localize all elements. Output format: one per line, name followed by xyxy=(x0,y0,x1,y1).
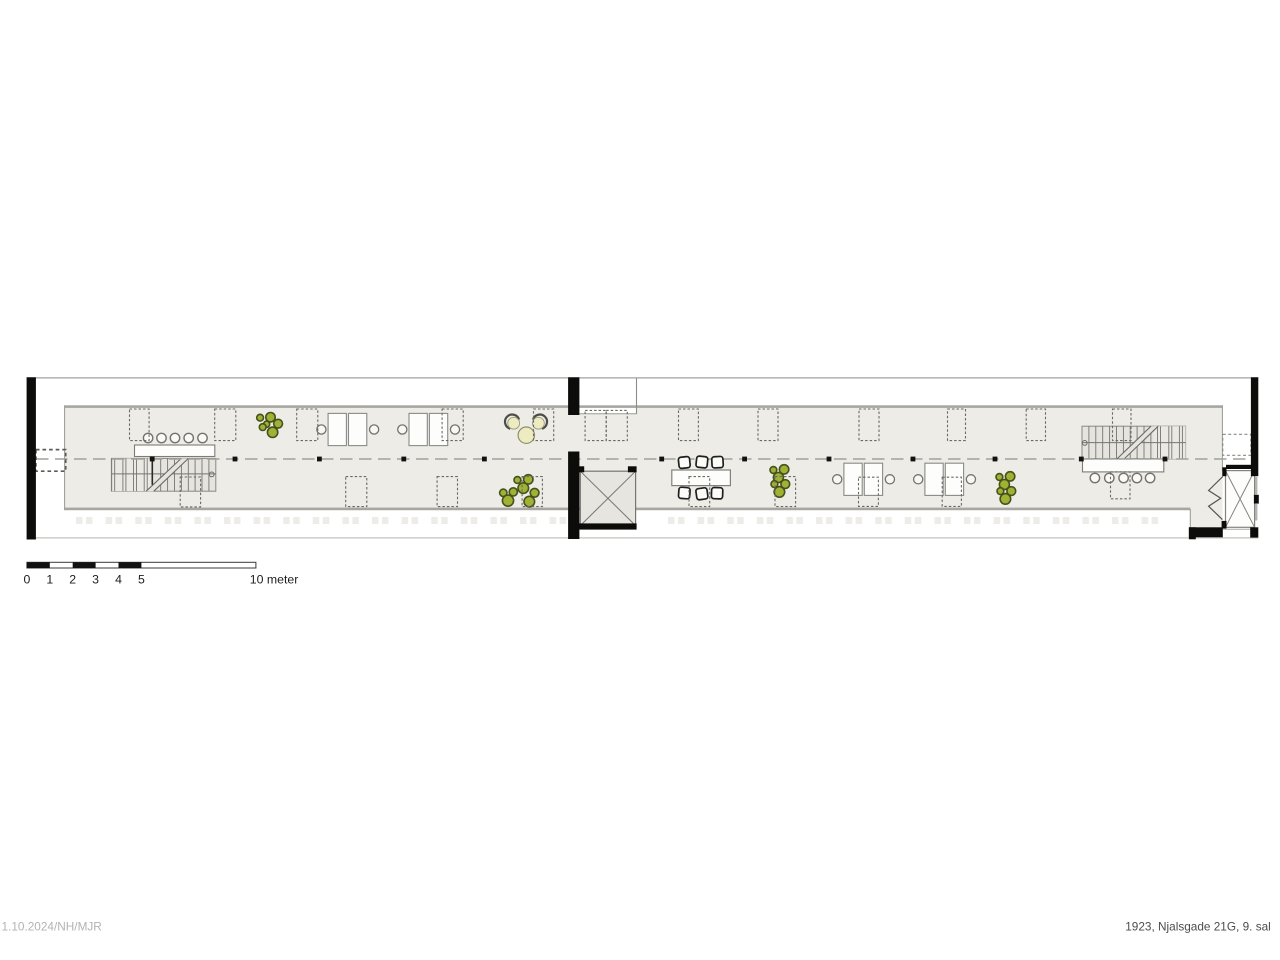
svg-text:1.10.2024/NH/MJR: 1.10.2024/NH/MJR xyxy=(2,920,102,934)
svg-text:10 meter: 10 meter xyxy=(250,573,299,587)
svg-text:5: 5 xyxy=(138,573,145,587)
svg-text:3: 3 xyxy=(92,573,99,587)
svg-text:2: 2 xyxy=(69,573,76,587)
svg-text:0: 0 xyxy=(23,573,30,587)
svg-text:4: 4 xyxy=(115,573,122,587)
svg-text:1: 1 xyxy=(46,573,53,587)
svg-text:1923, Njalsgade 21G, 9. sal: 1923, Njalsgade 21G, 9. sal xyxy=(1125,920,1271,934)
